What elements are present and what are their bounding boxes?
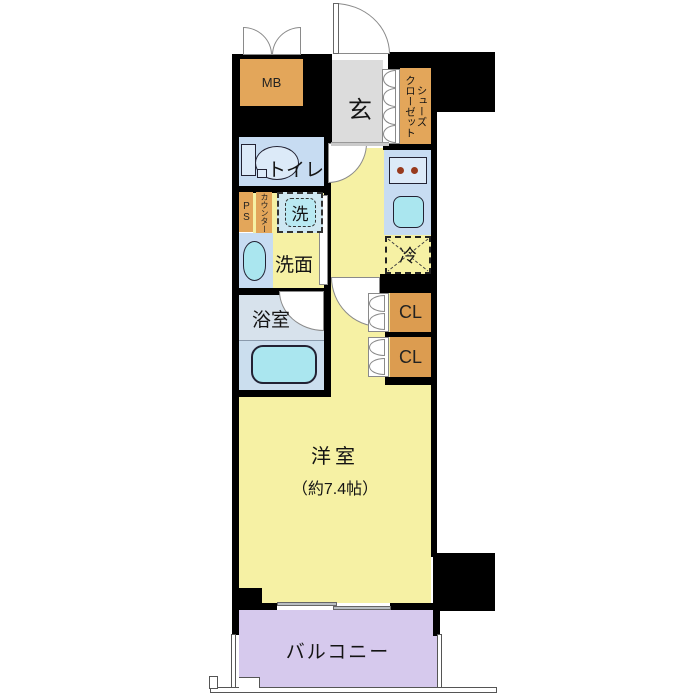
meter-box-label: MB [262, 75, 282, 90]
stove-burner-left [397, 167, 404, 174]
main-room-name: 洋室 [311, 440, 359, 469]
balcony-notch [239, 677, 260, 688]
shoes-closet-door [382, 69, 400, 144]
wall-cl-top [380, 274, 431, 293]
closet-lower: CL [390, 337, 431, 377]
entrance-step-line [331, 142, 389, 146]
wall-left [232, 54, 239, 635]
shoes-door-arc [383, 107, 396, 125]
washer-label: 洗 [292, 200, 309, 225]
closet-door-arc [369, 339, 385, 356]
toilet-label: トイレ [267, 155, 324, 182]
stove-burner-right [411, 167, 418, 174]
wall-cl-bottom [385, 377, 431, 385]
shoes-door-arc [383, 88, 396, 106]
counter-label: カウンター [260, 193, 268, 233]
entrance-door-leaf [333, 3, 339, 54]
wall-bottom-right [390, 603, 435, 610]
wall-kitchen-top [383, 144, 431, 150]
vanity-sink [243, 241, 266, 281]
mb-door-arc-left [243, 27, 272, 55]
shoes-door-arc [383, 70, 396, 88]
shoes-closet-label-col1: シューズ [416, 85, 427, 127]
counter-cabinet: カウンター [256, 192, 272, 233]
toilet-tank [241, 144, 256, 176]
wall-corner-block [433, 553, 495, 611]
washer-space: 洗 [277, 192, 323, 233]
meter-box: MB [240, 59, 303, 106]
balcony-railing-left [231, 634, 236, 688]
closet-lower-label: CL [399, 347, 422, 368]
balcony-window-left [277, 602, 337, 606]
closet-door-arc [369, 295, 385, 312]
entrance-label: 玄 [348, 90, 372, 125]
wall-bath-bottom [232, 390, 331, 397]
washroom-label: 洗面 [275, 250, 313, 277]
main-room-label: 洋室 （約7.4帖） [255, 440, 415, 499]
closet-door-arc [369, 358, 385, 375]
pipe-space: PS [239, 192, 253, 232]
wall-right [431, 112, 437, 557]
shoes-closet-label-col2: クローゼット [405, 75, 416, 138]
floor-plan: MB クローゼット シューズ PS カウンター CL CL [0, 0, 700, 700]
closet-lower-door [368, 337, 389, 377]
fridge-cross [387, 238, 429, 272]
fridge-space: 冷 [385, 236, 431, 274]
entrance-door-arc [334, 3, 390, 54]
kitchen-sink [393, 196, 424, 228]
wall-bottom-step [232, 588, 262, 604]
wall-bottom-left [239, 603, 277, 610]
balcony-window-right [333, 606, 391, 610]
shoes-closet: クローゼット シューズ [400, 68, 431, 144]
balcony-label: バルコニー [258, 637, 418, 664]
bathtub [251, 345, 317, 384]
main-room-size: （約7.4帖） [292, 475, 378, 499]
balcony-label-text: バルコニー [286, 637, 391, 664]
toilet-seat-box [257, 169, 267, 178]
bathroom-label: 浴室 [252, 305, 290, 332]
washer-inner: 洗 [285, 198, 316, 227]
balcony-railing-right [437, 634, 442, 688]
wall-top-right-b [431, 52, 495, 112]
main-room-floor [239, 397, 331, 603]
stove [389, 157, 427, 184]
closet-door-arc [369, 313, 385, 330]
closet-upper-door [368, 293, 389, 332]
balcony-railing-hook [209, 676, 218, 689]
closet-upper-label: CL [399, 302, 422, 323]
shoes-door-arc [383, 125, 396, 143]
wall-balcony-right [433, 610, 440, 636]
mb-door-arc-right [272, 27, 301, 55]
closet-upper: CL [390, 293, 431, 332]
pipe-space-label: PS [241, 201, 251, 223]
